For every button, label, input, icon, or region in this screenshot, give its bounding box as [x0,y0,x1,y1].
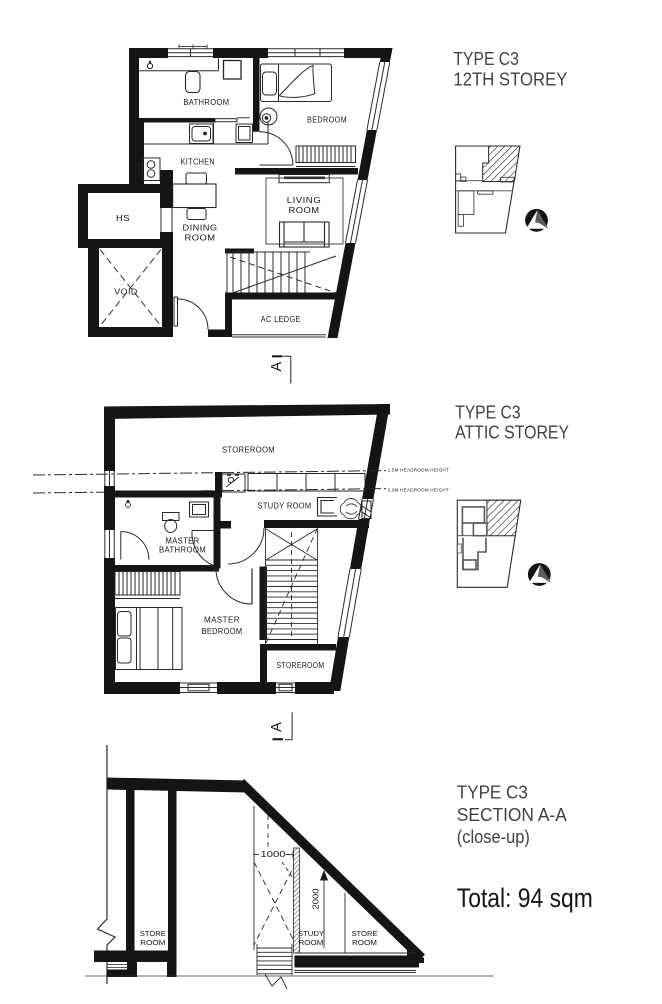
svg-text:LIVING: LIVING [287,195,322,205]
svg-text:12TH STOREY: 12TH STOREY [453,69,567,90]
svg-text:A: A [269,722,285,732]
svg-text:1000: 1000 [261,850,287,859]
svg-text:STORE: STORE [140,929,166,938]
svg-text:MASTER: MASTER [204,614,240,624]
svg-text:TYPE C3: TYPE C3 [453,48,519,69]
svg-text:KITCHEN: KITCHEN [181,156,216,166]
svg-text:BEDROOM: BEDROOM [307,114,347,124]
svg-text:TYPE C3: TYPE C3 [455,402,520,423]
svg-text:HS: HS [116,213,130,223]
svg-text:2000: 2000 [312,888,321,910]
svg-text:BATHROOM: BATHROOM [183,97,229,107]
svg-text:TYPE C3: TYPE C3 [457,782,528,803]
svg-text:DINING: DINING [183,223,218,233]
svg-text:STUDY: STUDY [298,929,324,938]
svg-text:1.5M HEADROOM HEIGHT: 1.5M HEADROOM HEIGHT [388,468,449,473]
svg-text:(close-up): (close-up) [457,826,530,847]
svg-text:2.0M HEADROOM HEIGHT: 2.0M HEADROOM HEIGHT [388,487,449,492]
svg-text:VOID: VOID [114,287,138,297]
svg-text:ROOM: ROOM [140,938,165,947]
svg-text:SECTION A-A: SECTION A-A [457,804,568,825]
svg-text:ROOM: ROOM [352,938,377,947]
svg-text:STUDY ROOM: STUDY ROOM [258,501,312,511]
svg-text:ROOM: ROOM [299,938,324,947]
svg-text:ROOM: ROOM [185,233,216,243]
svg-text:A: A [269,362,285,372]
svg-text:Total: 94 sqm: Total: 94 sqm [457,883,593,913]
svg-text:AC LEDGE: AC LEDGE [261,314,301,324]
svg-text:ROOM: ROOM [289,205,320,215]
svg-text:BEDROOM: BEDROOM [202,626,243,636]
svg-text:STORE: STORE [352,929,378,938]
svg-text:STOREROOM: STOREROOM [222,445,275,455]
svg-text:ATTIC STOREY: ATTIC STOREY [455,422,569,443]
svg-text:BATHROOM: BATHROOM [159,545,206,555]
svg-text:STOREROOM: STOREROOM [277,660,325,670]
